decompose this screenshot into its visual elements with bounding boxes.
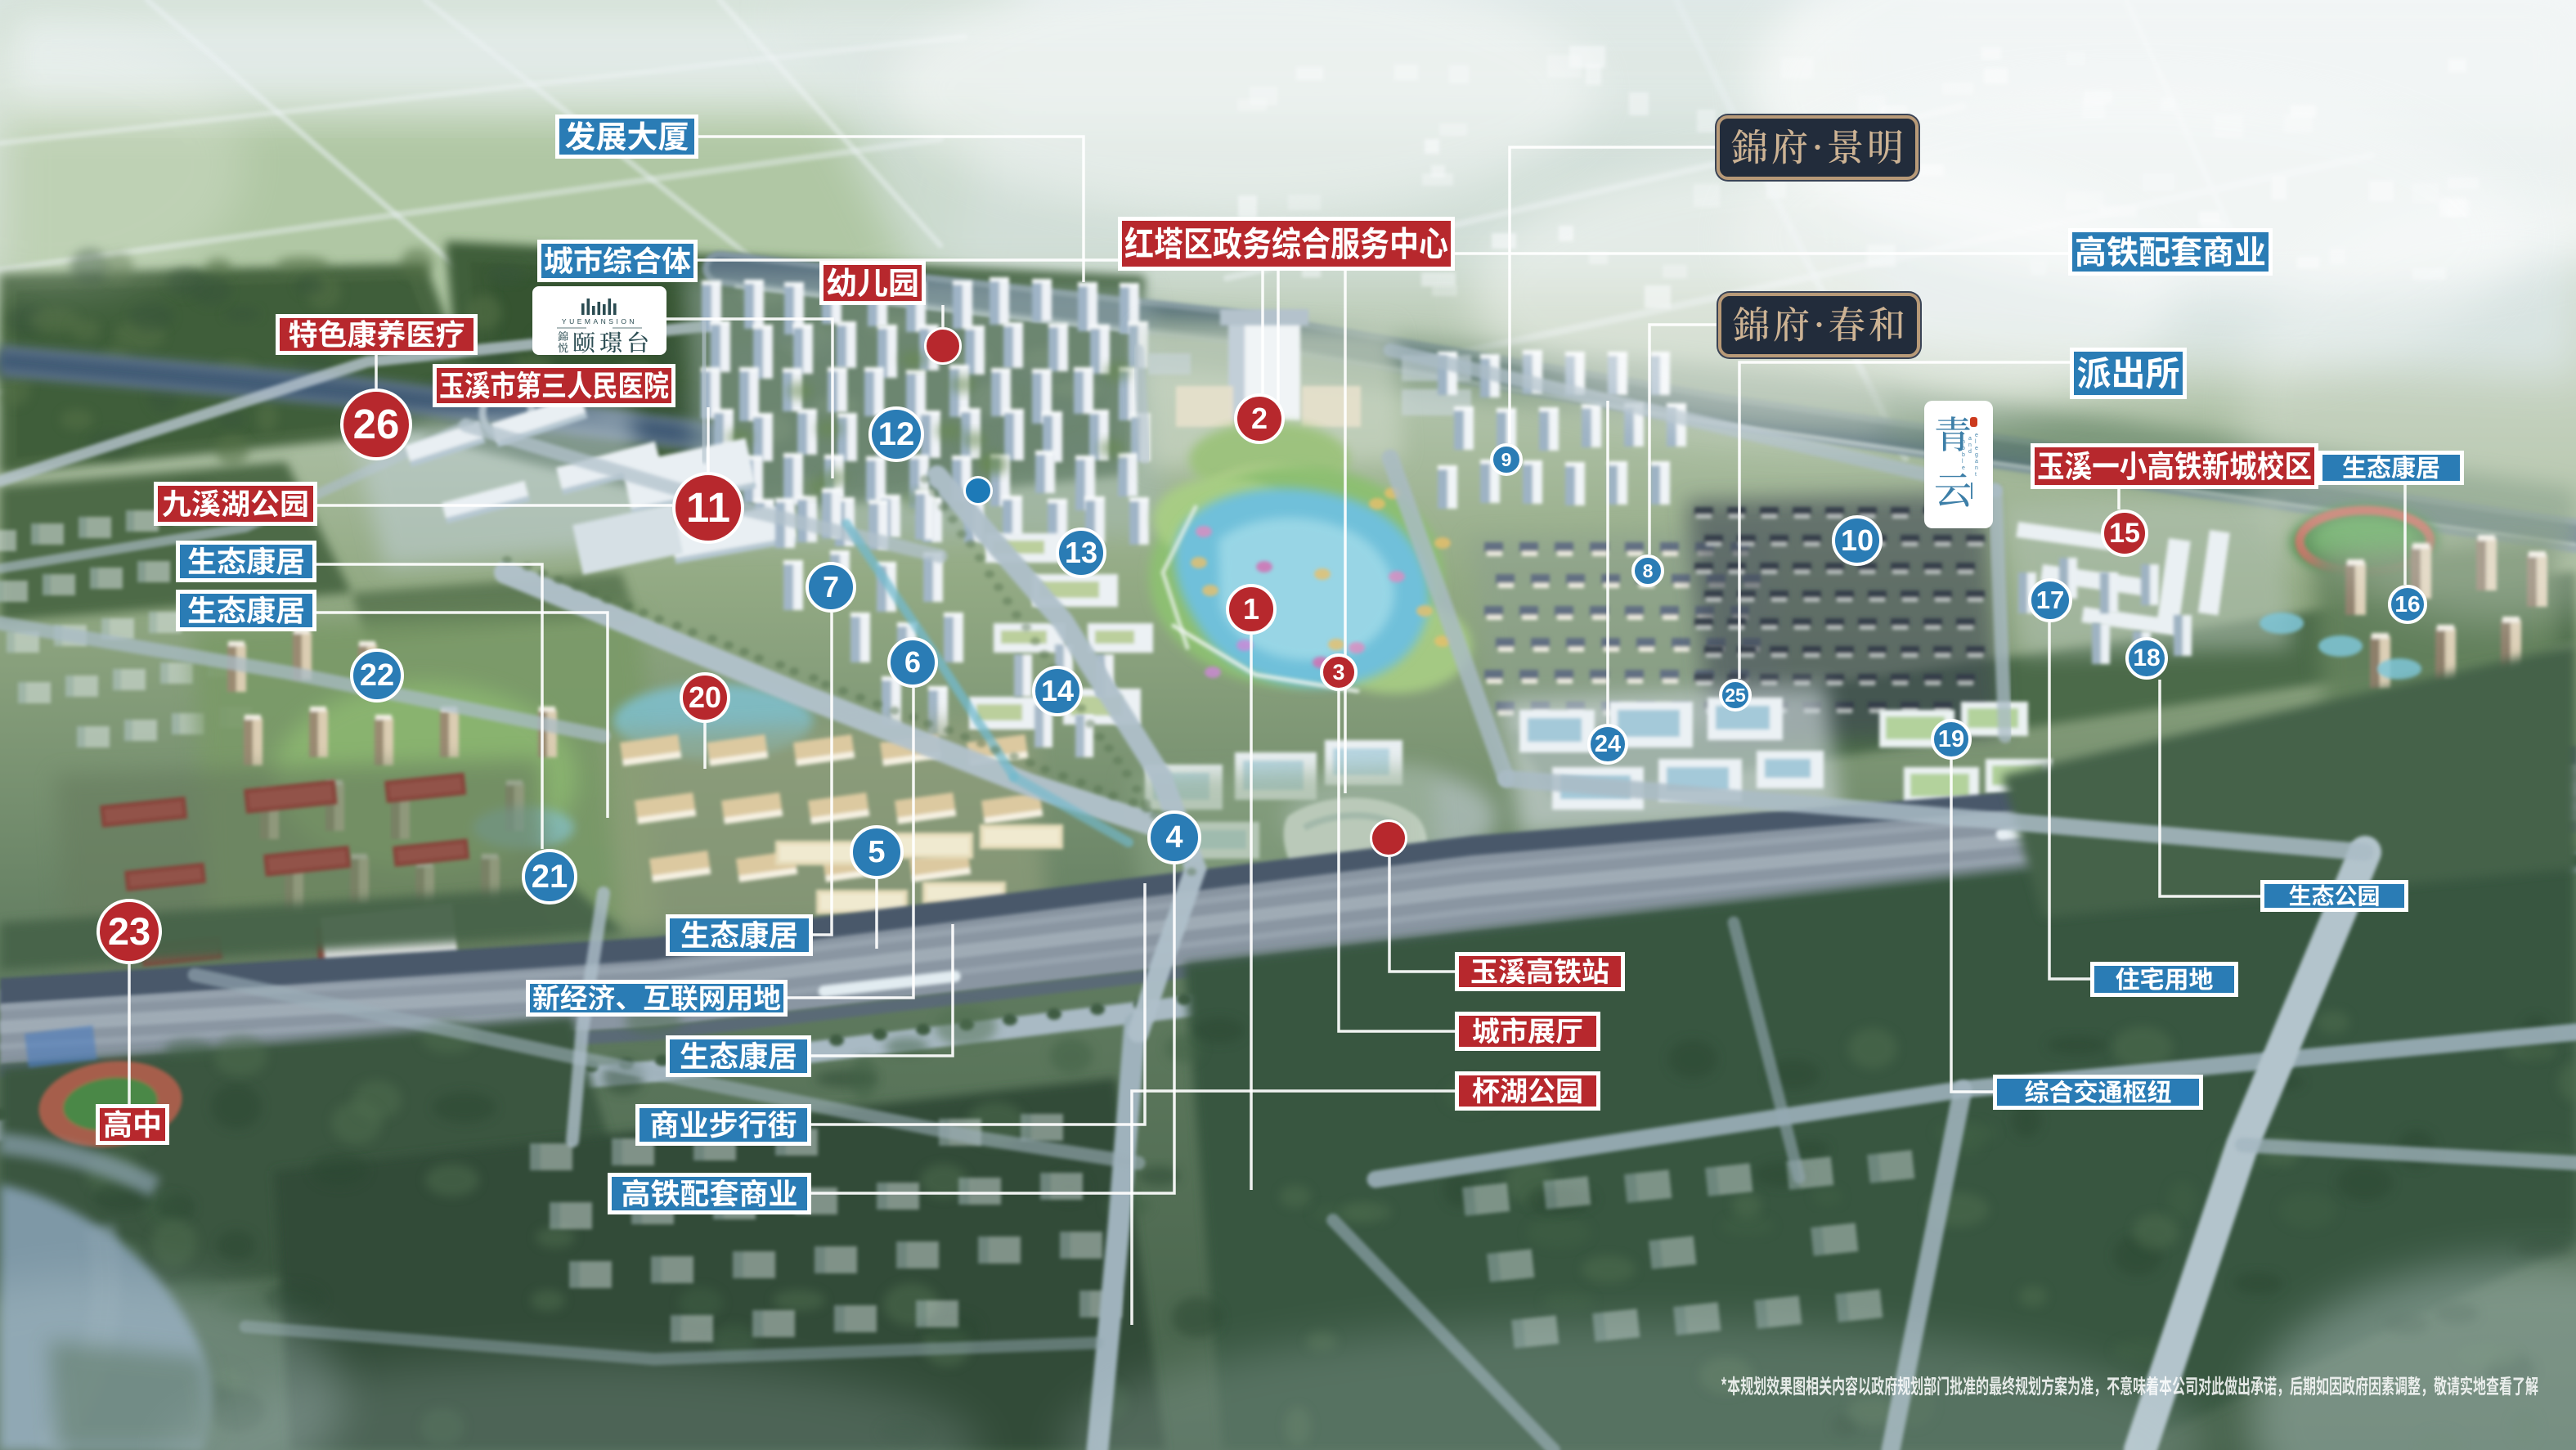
svg-text:e: e <box>1975 446 1978 451</box>
svg-text:a: a <box>1968 436 1972 442</box>
svg-text:e: e <box>1975 433 1978 438</box>
svg-text:l: l <box>1962 459 1963 465</box>
svg-text:YUEMANSION: YUEMANSION <box>562 317 637 325</box>
svg-text:b: b <box>1962 452 1965 458</box>
svg-text:d: d <box>1968 449 1972 455</box>
svg-text:a: a <box>1975 459 1978 465</box>
svg-text:n: n <box>1975 465 1978 471</box>
svg-text:n: n <box>1962 439 1965 445</box>
svg-text:g: g <box>1975 452 1978 458</box>
svg-text:e: e <box>1962 465 1965 471</box>
svg-text:o: o <box>1962 446 1965 451</box>
svg-text:n: n <box>1968 442 1972 448</box>
svg-text:t: t <box>1975 472 1977 478</box>
svg-text:l: l <box>1975 439 1977 445</box>
